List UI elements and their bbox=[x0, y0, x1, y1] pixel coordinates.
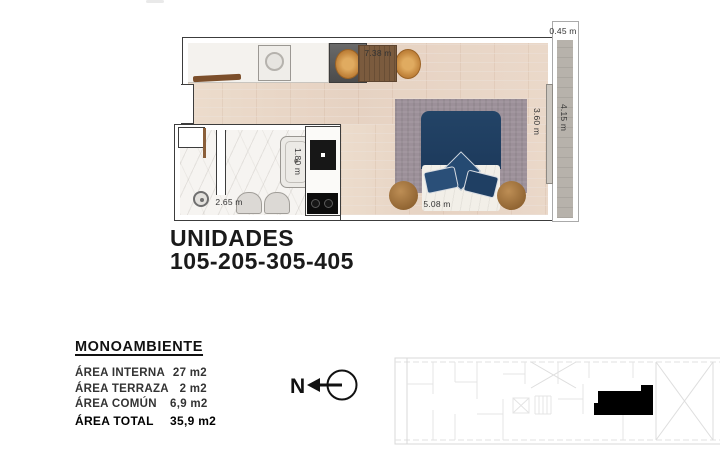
bed bbox=[421, 109, 501, 213]
washing-machine bbox=[258, 45, 291, 81]
area-value: 27 m2 bbox=[170, 367, 207, 379]
bathroom-sink-right bbox=[264, 192, 290, 214]
unit-title-block: UNIDADES 105-205-305-405 bbox=[170, 227, 354, 273]
area-row-total: ÁREA TOTAL 35,9 m2 bbox=[75, 414, 255, 428]
balcony-door bbox=[546, 84, 553, 184]
fridge-handle-dot bbox=[321, 153, 325, 157]
keyplan bbox=[393, 354, 720, 450]
keyplan-drawing bbox=[393, 354, 720, 450]
area-row-interna: ÁREA INTERNA 27 m2 bbox=[75, 367, 255, 379]
stairs bbox=[535, 396, 551, 414]
area-value: 2 m2 bbox=[170, 383, 207, 395]
dim-bath-depth: 1.80 m bbox=[293, 148, 303, 190]
floorplan-sheet: 7.38 m 0.45 m 3.60 m 4.15 m 5.08 m 2.65 … bbox=[0, 0, 720, 474]
unit-location-highlight bbox=[594, 385, 653, 415]
unit-type-title: MONOAMBIENTE bbox=[75, 339, 255, 355]
dim-bed-wall: 5.08 m bbox=[412, 199, 462, 209]
dim-terrace-width: 0.45 m bbox=[546, 26, 580, 36]
dim-living-width: 7.38 m bbox=[356, 48, 400, 58]
units-heading: UNIDADES bbox=[170, 227, 354, 250]
dim-room-depth: 3.60 m bbox=[532, 108, 542, 163]
unit-numbers: 105-205-305-405 bbox=[170, 250, 354, 273]
dim-terrace-length: 4.15 m bbox=[559, 104, 569, 162]
area-row-terraza: ÁREA TERRAZA 2 m2 bbox=[75, 383, 255, 395]
north-arrow-icon: N bbox=[289, 365, 364, 405]
area-row-comun: ÁREA COMÚN 6,9 m2 bbox=[75, 398, 255, 410]
area-value: 6,9 m2 bbox=[170, 398, 207, 410]
area-label: ÁREA TOTAL bbox=[75, 414, 170, 428]
fridge bbox=[310, 140, 336, 170]
area-label: ÁREA COMÚN bbox=[75, 398, 170, 410]
shower-partition-wall bbox=[216, 130, 226, 195]
compass: N bbox=[289, 365, 364, 405]
compass-label: N bbox=[290, 375, 305, 398]
bathroom-door bbox=[203, 128, 206, 158]
burner-left bbox=[311, 199, 320, 208]
pouf-right bbox=[497, 181, 526, 210]
dim-bath-width: 2.65 m bbox=[205, 197, 253, 207]
area-summary: MONOAMBIENTE ÁREA INTERNA 27 m2 ÁREA TER… bbox=[75, 339, 255, 432]
area-label: ÁREA TERRAZA bbox=[75, 383, 170, 395]
area-label: ÁREA INTERNA bbox=[75, 367, 170, 379]
right-cross bbox=[656, 362, 713, 440]
cooktop bbox=[307, 193, 338, 214]
bathroom-closet bbox=[178, 127, 205, 148]
burner-right bbox=[324, 199, 333, 208]
mid-cross bbox=[531, 362, 576, 388]
washing-machine-door bbox=[265, 52, 284, 71]
shower-drain-dot bbox=[200, 198, 204, 202]
elevator-x bbox=[513, 398, 529, 413]
area-value: 35,9 m2 bbox=[170, 414, 207, 428]
entry-nook bbox=[181, 84, 194, 124]
